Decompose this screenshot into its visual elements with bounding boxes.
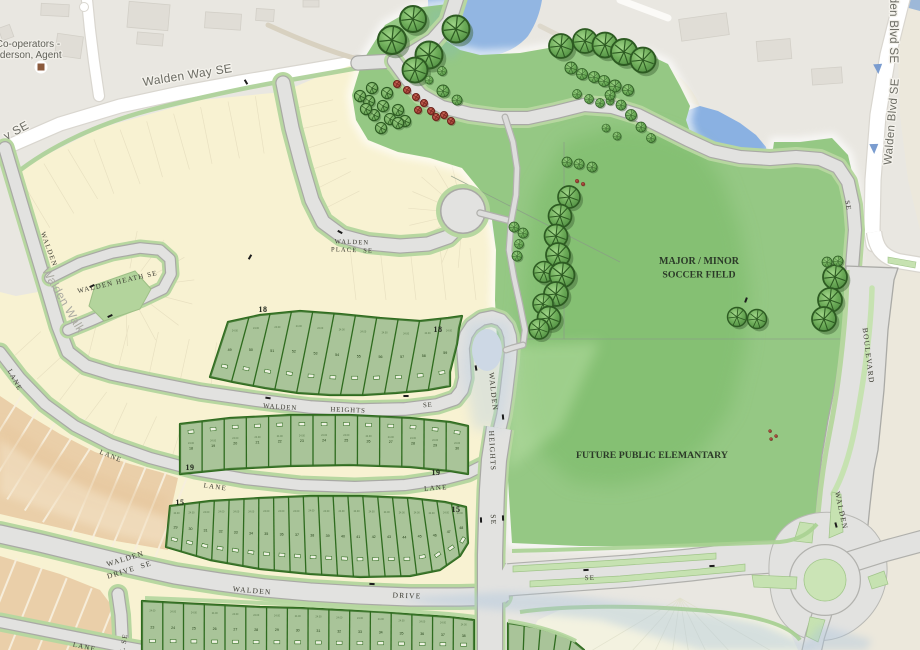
svg-text:48: 48 (459, 526, 463, 530)
svg-text:24.00: 24.00 (248, 510, 255, 513)
svg-text:24.00: 24.00 (414, 512, 421, 515)
svg-text:Co-operators -: Co-operators - (0, 39, 60, 50)
svg-text:24.00: 24.00 (429, 512, 436, 515)
svg-text:24.00: 24.00 (212, 612, 219, 615)
svg-text:18: 18 (259, 305, 268, 314)
svg-text:31: 31 (204, 528, 208, 532)
svg-text:24.00: 24.00 (189, 511, 196, 514)
svg-text:24.00: 24.00 (343, 434, 350, 437)
svg-text:WALDEN: WALDEN (335, 238, 370, 246)
svg-text:19: 19 (211, 444, 215, 448)
svg-text:22: 22 (278, 440, 282, 444)
svg-text:24.00: 24.00 (339, 510, 346, 513)
svg-text:24.00: 24.00 (274, 326, 281, 329)
svg-text:24.00: 24.00 (378, 618, 385, 621)
svg-text:25: 25 (192, 626, 196, 630)
svg-text:18: 18 (189, 446, 193, 450)
svg-text:nderson, Agent: nderson, Agent (0, 50, 62, 61)
svg-text:30: 30 (296, 629, 300, 633)
svg-text:28: 28 (411, 441, 415, 445)
svg-text:24.00: 24.00 (446, 330, 453, 333)
svg-text:28: 28 (254, 628, 258, 632)
svg-text:24.00: 24.00 (323, 510, 330, 513)
svg-text:56: 56 (379, 355, 383, 359)
svg-text:FUTURE PUBLIC ELEMANTARY: FUTURE PUBLIC ELEMANTARY (576, 450, 728, 461)
svg-text:29: 29 (174, 526, 178, 530)
svg-text:35: 35 (264, 532, 268, 536)
svg-text:24: 24 (171, 626, 175, 630)
svg-text:24.00: 24.00 (336, 616, 343, 619)
svg-text:24.00: 24.00 (296, 325, 303, 328)
svg-text:24.00: 24.00 (354, 510, 361, 513)
svg-text:20: 20 (233, 442, 237, 446)
svg-text:24.00: 24.00 (321, 434, 328, 437)
svg-text:24.00: 24.00 (443, 512, 450, 515)
svg-text:37: 37 (441, 633, 445, 637)
svg-text:24.00: 24.00 (191, 611, 198, 614)
svg-text:15: 15 (176, 498, 185, 507)
svg-text:24: 24 (322, 439, 326, 443)
svg-text:46: 46 (433, 534, 437, 538)
svg-text:55: 55 (357, 354, 361, 358)
svg-text:24.00: 24.00 (461, 623, 468, 626)
svg-text:29: 29 (275, 628, 279, 632)
svg-text:18: 18 (434, 325, 443, 334)
svg-text:45: 45 (418, 534, 422, 538)
svg-text:31: 31 (316, 629, 320, 633)
svg-text:24.00: 24.00 (149, 610, 156, 613)
svg-text:SE: SE (423, 402, 433, 409)
svg-text:39: 39 (326, 534, 330, 538)
svg-text:DRIVE: DRIVE (392, 590, 421, 600)
svg-text:27: 27 (389, 440, 393, 444)
svg-text:24.00: 24.00 (210, 439, 217, 442)
svg-text:21: 21 (256, 441, 260, 445)
svg-text:24.00: 24.00 (440, 622, 447, 625)
svg-text:24.00: 24.00 (425, 332, 432, 335)
svg-text:24.00: 24.00 (388, 436, 395, 439)
svg-text:26: 26 (213, 627, 217, 631)
svg-text:24.00: 24.00 (410, 437, 417, 440)
svg-text:32: 32 (337, 630, 341, 634)
svg-text:30: 30 (189, 527, 193, 531)
svg-text:24.00: 24.00 (454, 442, 461, 445)
svg-text:24.00: 24.00 (308, 510, 315, 513)
svg-text:MAJOR / MINOR: MAJOR / MINOR (659, 256, 740, 267)
svg-text:44: 44 (402, 535, 406, 539)
svg-text:25: 25 (344, 439, 348, 443)
svg-text:24.00: 24.00 (263, 510, 270, 513)
svg-text:24.00: 24.00 (317, 327, 324, 330)
svg-text:24.00: 24.00 (299, 434, 306, 437)
svg-text:24.00: 24.00 (403, 333, 410, 336)
svg-text:43: 43 (387, 535, 391, 539)
svg-text:24.00: 24.00 (399, 511, 406, 514)
svg-text:24.00: 24.00 (174, 512, 181, 515)
svg-text:34: 34 (249, 531, 253, 535)
svg-text:42: 42 (372, 535, 376, 539)
svg-text:24.00: 24.00 (432, 439, 439, 442)
svg-text:24.00: 24.00 (360, 330, 367, 333)
svg-text:59: 59 (443, 351, 447, 355)
svg-text:den Blvd SE: den Blvd SE (887, 0, 899, 63)
svg-text:PLACE SE: PLACE SE (331, 246, 373, 254)
svg-text:SOCCER FIELD: SOCCER FIELD (662, 270, 735, 281)
svg-text:24.00: 24.00 (253, 614, 260, 617)
svg-text:24.00: 24.00 (274, 614, 281, 617)
svg-text:24.00: 24.00 (293, 510, 300, 513)
svg-text:49: 49 (228, 348, 232, 352)
svg-text:27: 27 (233, 627, 237, 631)
svg-text:40: 40 (341, 535, 345, 539)
svg-text:41: 41 (356, 535, 360, 539)
svg-text:36: 36 (280, 533, 284, 537)
svg-text:32: 32 (219, 530, 223, 534)
svg-text:34: 34 (379, 631, 383, 635)
svg-text:58: 58 (422, 354, 426, 358)
svg-text:33: 33 (234, 531, 238, 535)
svg-text:24.00: 24.00 (295, 615, 302, 618)
svg-text:24.00: 24.00 (232, 437, 239, 440)
svg-text:19: 19 (186, 463, 195, 472)
svg-text:SE: SE (585, 574, 596, 582)
svg-text:24.00: 24.00 (316, 616, 323, 619)
svg-text:54: 54 (335, 353, 339, 357)
svg-text:47: 47 (447, 530, 451, 534)
svg-text:24.00: 24.00 (369, 511, 376, 514)
svg-text:24.00: 24.00 (278, 510, 285, 513)
svg-text:23: 23 (150, 625, 154, 629)
svg-text:24.00: 24.00 (382, 332, 389, 335)
svg-text:50: 50 (249, 348, 253, 352)
svg-text:35: 35 (400, 631, 404, 635)
svg-text:53: 53 (314, 352, 318, 356)
svg-text:24.00: 24.00 (399, 619, 406, 622)
svg-text:24.00: 24.00 (218, 511, 225, 514)
svg-text:24.00: 24.00 (203, 511, 210, 514)
svg-text:52: 52 (292, 350, 296, 354)
svg-text:24.00: 24.00 (232, 613, 239, 616)
svg-text:51: 51 (270, 349, 274, 353)
svg-text:15: 15 (452, 505, 461, 514)
svg-text:38: 38 (310, 534, 314, 538)
svg-text:24.00: 24.00 (232, 330, 239, 333)
svg-text:37: 37 (295, 533, 299, 537)
svg-text:24.00: 24.00 (366, 435, 373, 438)
svg-text:24.00: 24.00 (233, 510, 240, 513)
svg-text:SE: SE (489, 514, 498, 525)
svg-text:19: 19 (432, 468, 441, 477)
svg-text:24.00: 24.00 (384, 511, 391, 514)
svg-text:24.00: 24.00 (277, 435, 284, 438)
svg-text:LANE: LANE (424, 483, 448, 493)
svg-text:24.00: 24.00 (170, 611, 177, 614)
svg-text:24.00: 24.00 (419, 621, 426, 624)
svg-text:24.00: 24.00 (253, 327, 260, 330)
svg-text:23: 23 (300, 439, 304, 443)
svg-text:26: 26 (367, 439, 371, 443)
svg-text:33: 33 (358, 630, 362, 634)
svg-text:57: 57 (400, 355, 404, 359)
svg-text:38: 38 (462, 634, 466, 638)
svg-text:24.00: 24.00 (255, 436, 262, 439)
svg-text:36: 36 (420, 632, 424, 636)
svg-text:30: 30 (455, 446, 459, 450)
svg-text:24.00: 24.00 (339, 329, 346, 332)
svg-text:29: 29 (433, 444, 437, 448)
svg-text:24.00: 24.00 (357, 617, 364, 620)
svg-text:24.00: 24.00 (188, 442, 195, 445)
svg-text:HEIGHTS: HEIGHTS (330, 406, 366, 414)
